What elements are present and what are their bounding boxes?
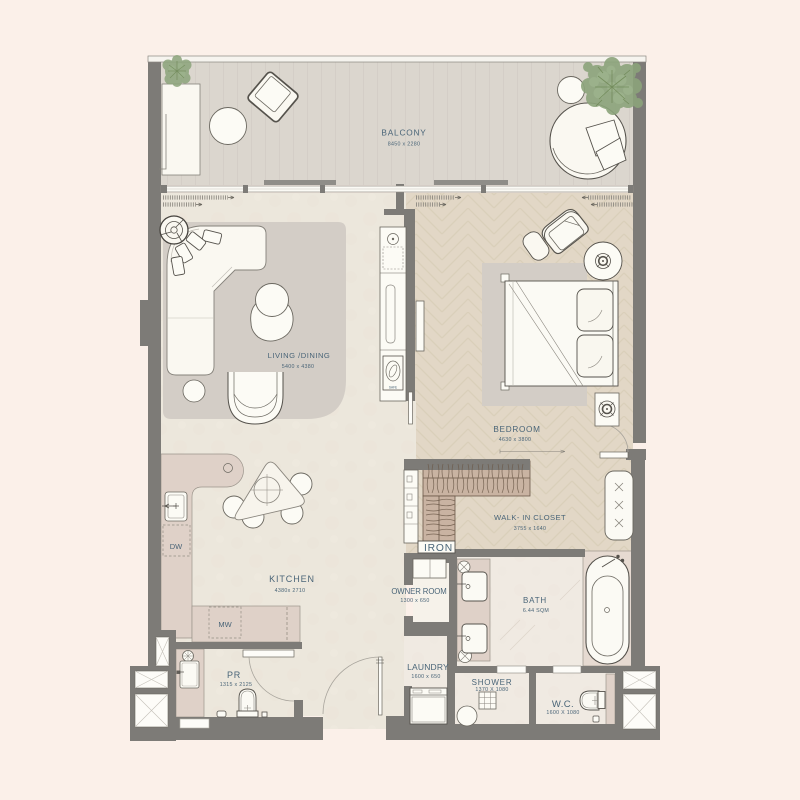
svg-text:4380x 2710: 4380x 2710 (275, 588, 306, 594)
svg-text:1315 x 2125: 1315 x 2125 (220, 682, 252, 688)
svg-text:SAFE: SAFE (389, 386, 397, 390)
svg-text:4630 x 3800: 4630 x 3800 (499, 437, 531, 443)
svg-text:OWNER ROOM: OWNER ROOM (391, 587, 446, 596)
svg-text:IRON: IRON (424, 543, 453, 554)
svg-text:6.44 SQM: 6.44 SQM (523, 608, 549, 614)
svg-text:1300 x 650: 1300 x 650 (400, 598, 429, 604)
svg-text:5400 x 4380: 5400 x 4380 (282, 364, 314, 370)
svg-text:BEDROOM: BEDROOM (493, 425, 540, 434)
svg-text:MW: MW (218, 620, 232, 629)
svg-text:WALK- IN CLOSET: WALK- IN CLOSET (494, 513, 566, 522)
svg-text:LAUNDRY: LAUNDRY (407, 662, 449, 672)
svg-text:3755 x 1640: 3755 x 1640 (514, 526, 546, 532)
svg-text:PR: PR (227, 670, 241, 680)
svg-text:LIVING /DINING: LIVING /DINING (268, 351, 331, 360)
svg-text:KITCHEN: KITCHEN (269, 574, 315, 584)
svg-text:DW: DW (170, 542, 183, 551)
svg-text:SHOWER: SHOWER (472, 678, 513, 687)
svg-text:W.C.: W.C. (552, 699, 574, 710)
svg-text:BATH: BATH (523, 596, 547, 605)
svg-text:1600 x 650: 1600 x 650 (411, 674, 440, 680)
svg-text:1370 X 1080: 1370 X 1080 (475, 687, 508, 693)
svg-text:1600 X 1080: 1600 X 1080 (546, 710, 579, 716)
svg-text:8450 x 2280: 8450 x 2280 (388, 142, 420, 148)
svg-text:BALCONY: BALCONY (381, 128, 426, 138)
